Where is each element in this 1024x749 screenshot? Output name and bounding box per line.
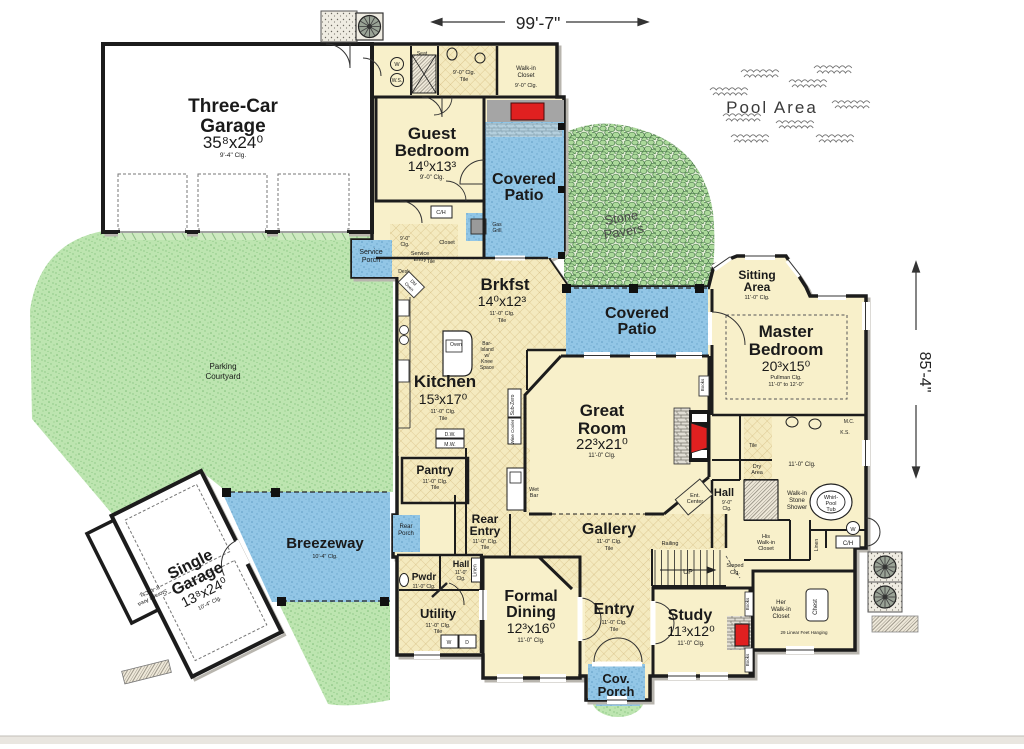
svg-text:Sloped: Sloped (726, 563, 743, 569)
svg-text:Space: Space (480, 365, 494, 371)
svg-text:Utility: Utility (420, 606, 457, 621)
svg-text:Dining: Dining (506, 604, 556, 621)
svg-text:M.C.: M.C. (844, 419, 855, 425)
svg-text:Walk-in: Walk-in (771, 607, 791, 613)
svg-text:Tile: Tile (434, 629, 443, 635)
svg-text:11'-0" Clg.: 11'-0" Clg. (413, 584, 436, 590)
svg-text:11³x12⁰: 11³x12⁰ (667, 623, 715, 639)
svg-text:Books: Books (745, 597, 750, 610)
svg-text:Tub: Tub (826, 507, 835, 513)
svg-text:11'-0" to 12'-0": 11'-0" to 12'-0" (768, 382, 803, 388)
svg-text:Stone: Stone (789, 498, 805, 504)
svg-text:Great: Great (580, 401, 625, 420)
svg-text:Walk-in: Walk-in (787, 491, 807, 497)
svg-text:Area: Area (744, 280, 771, 294)
svg-text:Closet: Closet (758, 546, 774, 552)
svg-text:Walk-in: Walk-in (516, 66, 536, 72)
svg-text:Breezeway: Breezeway (286, 535, 364, 552)
svg-text:W: W (394, 62, 400, 68)
svg-text:Railing: Railing (662, 541, 679, 547)
svg-text:Shower: Shower (787, 505, 807, 511)
svg-text:Area: Area (751, 470, 764, 476)
svg-text:Closet: Closet (439, 240, 455, 246)
svg-text:Parking: Parking (209, 362, 236, 371)
svg-text:W: W (850, 527, 856, 533)
svg-text:9'-0" Clg.: 9'-0" Clg. (453, 70, 476, 76)
svg-text:12³x16⁰: 12³x16⁰ (507, 620, 556, 636)
svg-text:K.S.: K.S. (840, 430, 849, 436)
svg-text:Tile: Tile (439, 416, 448, 422)
svg-text:Linen: Linen (473, 564, 479, 576)
svg-text:Tile: Tile (749, 443, 757, 449)
svg-text:Closet: Closet (772, 614, 789, 620)
svg-text:15³x17⁰: 15³x17⁰ (419, 391, 468, 407)
svg-text:Three-Car: Three-Car (188, 96, 278, 117)
svg-text:35⁸x24⁰: 35⁸x24⁰ (203, 133, 263, 152)
svg-text:99'-7": 99'-7" (516, 13, 561, 33)
svg-text:Porch: Porch (598, 684, 635, 699)
svg-text:Covered: Covered (492, 171, 556, 188)
svg-text:D: D (465, 640, 469, 646)
svg-text:M.W.: M.W. (444, 442, 455, 448)
svg-text:Formal: Formal (504, 588, 557, 605)
svg-text:Brkfst: Brkfst (480, 275, 529, 294)
svg-text:Patio: Patio (617, 321, 656, 338)
svg-text:20³x15⁰: 20³x15⁰ (762, 358, 811, 374)
svg-text:Books: Books (745, 653, 750, 666)
svg-text:Clg.: Clg. (730, 570, 740, 576)
svg-text:Tile: Tile (460, 77, 469, 83)
svg-text:22³x21⁰: 22³x21⁰ (576, 436, 628, 453)
svg-text:Chest: Chest (813, 599, 819, 615)
svg-text:11'-0" Clg.: 11'-0" Clg. (788, 462, 816, 468)
svg-text:Tile: Tile (605, 546, 614, 552)
svg-text:C/H: C/H (843, 541, 853, 547)
svg-text:Tile: Tile (610, 627, 619, 633)
svg-text:11'-0" Clg.: 11'-0" Clg. (677, 641, 705, 647)
svg-text:Her: Her (776, 600, 786, 606)
svg-text:Porch: Porch (362, 257, 380, 264)
svg-text:Master: Master (759, 322, 814, 341)
svg-text:Clg.: Clg. (401, 242, 410, 248)
svg-text:Service: Service (359, 249, 382, 256)
svg-text:Entry: Entry (414, 257, 427, 263)
svg-text:Entry: Entry (594, 601, 635, 618)
svg-text:11'-0" Clg.: 11'-0" Clg. (490, 311, 515, 317)
svg-text:Hall: Hall (714, 487, 734, 499)
svg-text:Closet: Closet (517, 73, 534, 79)
svg-text:Clg.: Clg. (723, 506, 732, 512)
svg-text:85'-4": 85'-4" (916, 352, 933, 393)
svg-text:Books: Books (700, 378, 705, 391)
svg-text:14⁰x13³: 14⁰x13³ (408, 158, 457, 174)
svg-text:W.S.: W.S. (392, 78, 403, 84)
svg-text:Pantry: Pantry (416, 463, 454, 477)
svg-text:Tile: Tile (431, 485, 440, 491)
svg-text:29 Linear Feet Hanging: 29 Linear Feet Hanging (780, 630, 828, 635)
svg-text:Tile: Tile (481, 545, 490, 551)
svg-text:Kitchen: Kitchen (414, 372, 476, 391)
svg-text:Rear: Rear (399, 524, 412, 530)
svg-text:9'-4" Clg.: 9'-4" Clg. (220, 152, 247, 159)
svg-text:11'-0" Clg.: 11'-0" Clg. (431, 409, 456, 415)
svg-text:Covered: Covered (605, 305, 669, 322)
svg-text:Seat: Seat (417, 51, 428, 57)
svg-text:UP: UP (683, 569, 693, 576)
svg-text:14⁰x12³: 14⁰x12³ (478, 293, 527, 309)
svg-text:Courtyard: Courtyard (205, 372, 240, 381)
svg-text:10'-4" Clg.: 10'-4" Clg. (312, 554, 338, 560)
svg-text:Pullman Clg.: Pullman Clg. (770, 375, 802, 381)
svg-text:Hall: Hall (453, 559, 470, 569)
svg-text:Pool Area: Pool Area (726, 98, 818, 117)
svg-text:Porch: Porch (398, 531, 414, 537)
svg-text:Study: Study (668, 607, 713, 624)
svg-text:Entry: Entry (470, 524, 501, 538)
svg-text:11'-0" Clg.: 11'-0" Clg. (602, 620, 627, 626)
svg-text:Tile: Tile (498, 318, 507, 324)
svg-text:9'-0" Clg.: 9'-0" Clg. (420, 175, 445, 181)
svg-text:11'-0" Clg.: 11'-0" Clg. (588, 453, 616, 459)
svg-text:Wine Cooler: Wine Cooler (510, 419, 515, 444)
svg-text:Oven: Oven (450, 342, 462, 348)
svg-text:C/H: C/H (436, 210, 446, 216)
svg-text:W: W (447, 640, 452, 646)
svg-text:11'-0" Clg.: 11'-0" Clg. (597, 539, 622, 545)
svg-text:Patio: Patio (504, 187, 543, 204)
svg-text:Clg.: Clg. (457, 576, 466, 582)
svg-text:Grill: Grill (493, 228, 502, 234)
svg-text:11'-0" Clg.: 11'-0" Clg. (517, 638, 545, 644)
svg-text:Linen: Linen (814, 539, 820, 551)
svg-text:Sub-Zero: Sub-Zero (510, 394, 516, 415)
svg-text:Gallery: Gallery (582, 521, 636, 538)
svg-text:Bedroom: Bedroom (749, 340, 824, 359)
svg-text:Pwdr: Pwdr (412, 572, 437, 583)
svg-text:D.W.: D.W. (445, 432, 456, 438)
svg-text:Bar: Bar (530, 493, 539, 499)
svg-text:Center: Center (687, 499, 704, 505)
svg-text:11'-0" Clg.: 11'-0" Clg. (745, 295, 770, 301)
svg-text:Tile: Tile (427, 259, 435, 265)
svg-text:9'-0" Clg.: 9'-0" Clg. (515, 83, 538, 89)
